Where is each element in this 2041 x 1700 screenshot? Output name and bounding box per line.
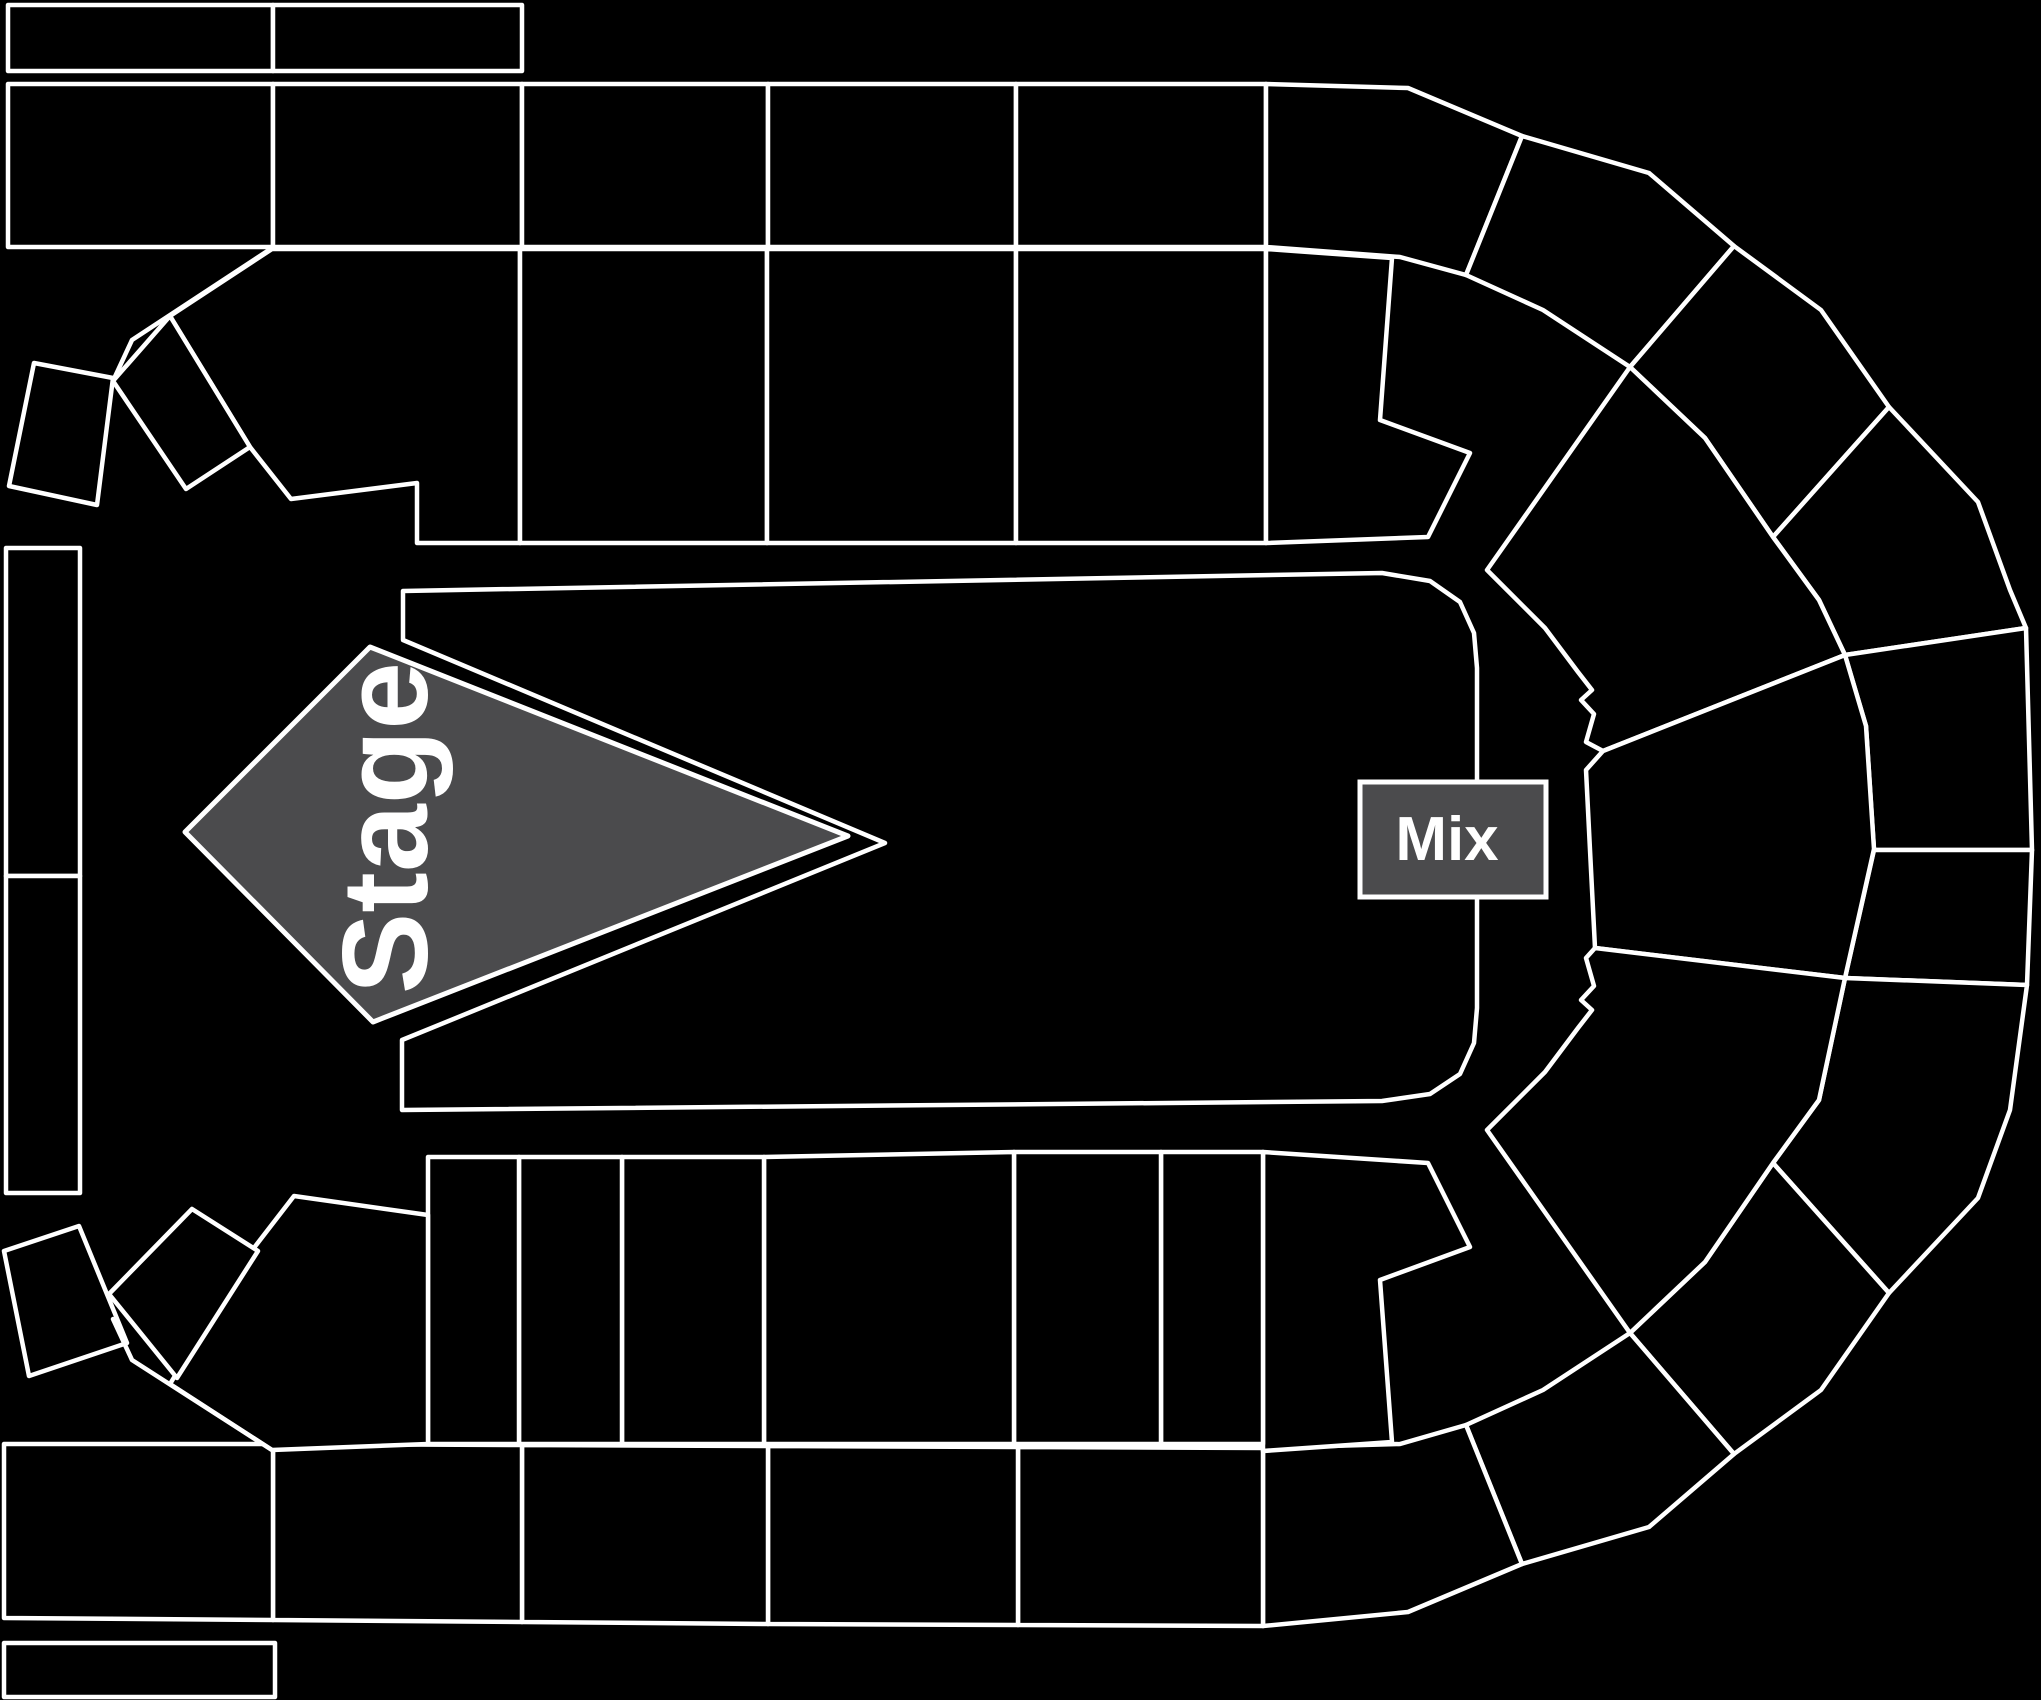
seating-map: StageMix	[0, 0, 2041, 1700]
section-inner-top-4[interactable]	[1016, 249, 1266, 543]
section-inner-bottom-1[interactable]	[428, 1157, 519, 1444]
section-lower-tier-3[interactable]	[522, 1445, 768, 1624]
section-upper-tier-5[interactable]	[1016, 84, 1266, 247]
section-left-column-2[interactable]	[6, 876, 80, 1193]
mix-label: Mix	[1395, 805, 1499, 874]
section-inner-top-left[interactable]	[170, 249, 520, 543]
section-upper-tier-1[interactable]	[8, 84, 273, 247]
section-inner-top-3[interactable]	[767, 249, 1016, 543]
section-top-row-1[interactable]	[8, 5, 273, 71]
section-lower-tier-5[interactable]	[1018, 1447, 1263, 1626]
section-inner-bottom-6[interactable]	[1161, 1152, 1263, 1444]
section-left-column-1[interactable]	[6, 548, 80, 876]
stage-label: Stage	[317, 662, 453, 994]
section-top-row-2[interactable]	[273, 5, 522, 71]
section-inner-bottom-right[interactable]	[1263, 1152, 1470, 1451]
section-wedge-top-left-1[interactable]	[9, 363, 113, 505]
section-upper-tier-2[interactable]	[273, 84, 522, 247]
section-inner-bottom-3[interactable]	[622, 1157, 764, 1444]
section-inner-top-2[interactable]	[520, 249, 767, 543]
section-inner-bottom-5[interactable]	[1014, 1152, 1161, 1444]
section-lower-tier-1[interactable]	[4, 1444, 273, 1620]
section-right-tier-2[interactable]	[1845, 850, 2032, 985]
section-upper-tier-4[interactable]	[768, 84, 1016, 247]
section-bottom-row-1[interactable]	[4, 1643, 275, 1697]
section-inner-bottom-4[interactable]	[764, 1152, 1014, 1444]
section-lower-tier-2[interactable]	[273, 1444, 522, 1622]
section-inner-top-right[interactable]	[1266, 249, 1470, 543]
section-lower-tier-4[interactable]	[768, 1446, 1018, 1625]
section-inner-bottom-2[interactable]	[519, 1157, 622, 1444]
section-wedge-bottom-left-1[interactable]	[4, 1226, 127, 1376]
seating-map-svg: StageMix	[0, 0, 2041, 1700]
section-upper-tier-3[interactable]	[522, 84, 768, 247]
